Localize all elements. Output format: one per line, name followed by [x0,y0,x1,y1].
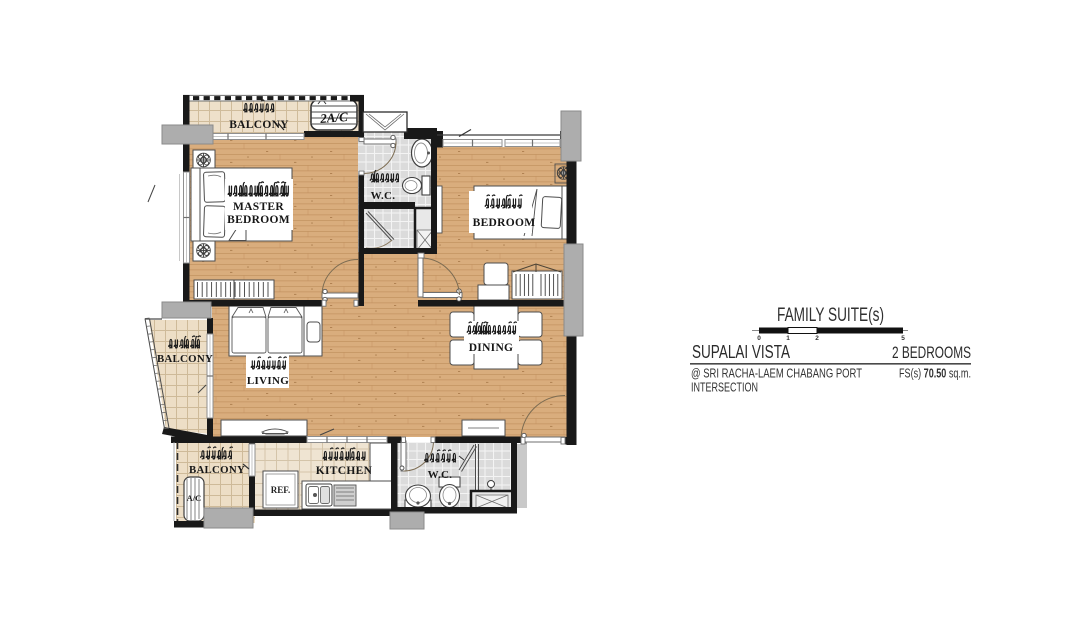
svg-text:INTERSECTION: INTERSECTION [691,381,758,395]
svg-text:FAMILY SUITE(s): FAMILY SUITE(s) [777,305,884,326]
svg-text:@ SRI RACHA-LAEM CHABANG PORT: @ SRI RACHA-LAEM CHABANG PORT [691,367,862,381]
svg-text:2A/C: 2A/C [319,109,349,126]
svg-text:BEDROOM: BEDROOM [473,217,536,229]
svg-text:BEDROOM: BEDROOM [227,214,290,226]
svg-text:W.C.: W.C. [428,469,453,481]
svg-text:LIVING: LIVING [247,375,289,387]
svg-text:5: 5 [901,335,905,342]
svg-text:KITCHEN: KITCHEN [316,465,373,477]
svg-text:1: 1 [786,335,790,342]
svg-text:2 BEDROOMS: 2 BEDROOMS [892,343,971,362]
svg-text:A/C: A/C [187,493,202,503]
svg-text:MASTER: MASTER [233,201,284,213]
svg-text:BALCONY: BALCONY [157,353,213,365]
svg-text:SUPALAI VISTA: SUPALAI VISTA [692,342,790,362]
svg-text:REF.: REF. [271,485,290,495]
svg-text:BALCONY: BALCONY [189,464,245,476]
svg-text:W.C.: W.C. [371,190,396,202]
svg-text:0: 0 [757,335,761,342]
svg-text:FS(s) 70.50 sq.m.: FS(s) 70.50 sq.m. [899,367,971,381]
svg-text:DINING: DINING [469,342,514,354]
svg-text:2: 2 [815,335,819,342]
